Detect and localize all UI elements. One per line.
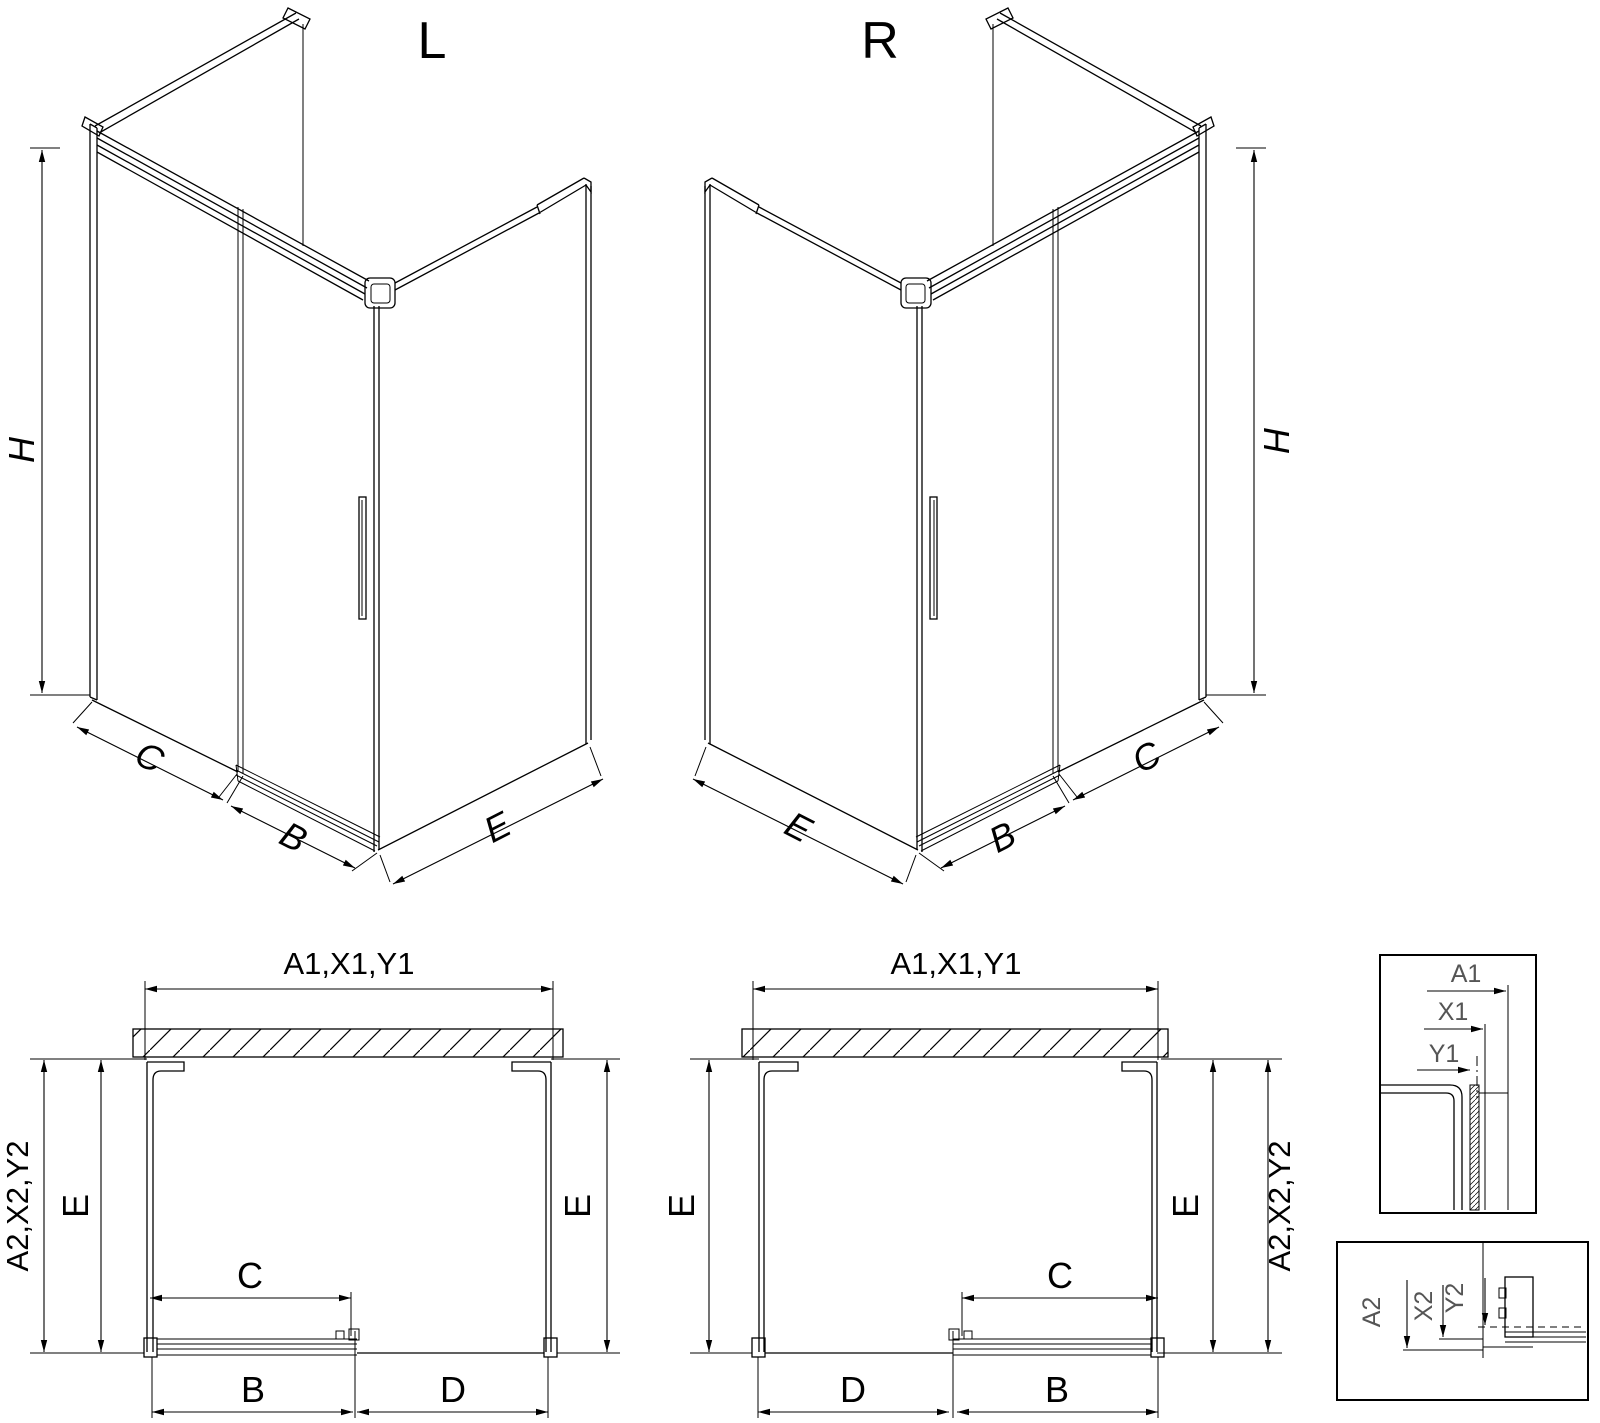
right-panel-outer-edge	[586, 184, 591, 744]
dim-H-extensions	[30, 148, 90, 695]
dim-label-height: H	[1, 436, 42, 463]
door-roller	[964, 1331, 972, 1339]
top-corner-block-inner	[906, 284, 925, 303]
right-wall-profile	[1199, 124, 1206, 700]
dim-H-extensions	[1206, 148, 1266, 695]
detail-dim-Y2: Y2	[1441, 1283, 1469, 1314]
dim-label-width: A1,X1,Y1	[284, 946, 415, 981]
top-rail-right	[395, 207, 539, 290]
wall-section-hatched	[133, 1029, 563, 1057]
door-roller	[336, 1331, 344, 1339]
dim-label-width: A1,X1,Y1	[891, 946, 1022, 981]
door-handle	[359, 497, 366, 619]
dim-label-door: B	[982, 813, 1022, 860]
bottom-dim-extensions	[758, 1357, 1158, 1418]
dim-label-opening: C	[237, 1255, 263, 1296]
front-corner-edge	[917, 306, 922, 852]
left-corner-block	[144, 1338, 157, 1357]
detail-wall-profile: A1 X1 Y1	[1380, 955, 1536, 1213]
detail-dim-A2: A2	[1358, 1297, 1386, 1328]
variant-label-left: L	[418, 12, 447, 70]
fixed-panel-bottom-edge	[1058, 700, 1204, 772]
top-rail-right	[927, 131, 1199, 300]
dim-label-side: E	[477, 803, 518, 851]
dim-label-opening: C	[1047, 1255, 1073, 1296]
door-end-block	[949, 1329, 959, 1340]
fixed-panel-bottom-edge	[92, 700, 238, 772]
dim-label-depth-right: E	[557, 1194, 598, 1218]
wall-section-hatched	[742, 1029, 1168, 1057]
door-bottom-track	[236, 765, 380, 851]
dim-label-fixed: C	[1125, 732, 1168, 781]
dim-label-height: H	[1256, 427, 1297, 454]
technical-drawing-page: H C B E L	[0, 0, 1600, 1423]
front-corner-edge	[374, 306, 379, 852]
dim-label-bottom-right: D	[440, 1369, 466, 1410]
plan-view-left: A1,X1,Y1 C A2,X2,Y2 E E B D	[0, 946, 620, 1418]
plan-view-right: A1,X1,Y1 C E E A2,X2,Y2 D B	[661, 946, 1297, 1418]
right-glass-plan	[512, 1062, 551, 1352]
detail-dim-A1: A1	[1451, 960, 1482, 988]
iso-view-left: H C B E L	[1, 8, 603, 884]
wall-profile-section	[1380, 1085, 1462, 1210]
dim-label-bottom-left: B	[241, 1369, 265, 1410]
rail-lines	[1483, 1332, 1586, 1347]
top-rail-right-endcap	[537, 178, 591, 214]
door-track-plan	[157, 1339, 357, 1355]
dim-label-bottom-right: B	[1045, 1369, 1069, 1410]
dim-label-depth-right: E	[1165, 1194, 1206, 1218]
top-stabilizer-bar	[997, 13, 1201, 133]
glass-section	[1470, 1085, 1479, 1210]
dim-label-bottom-left: D	[840, 1369, 866, 1410]
door-overlap-edge	[1053, 207, 1058, 774]
bottom-dim-extensions	[152, 1357, 548, 1418]
left-glass-plan	[759, 1062, 798, 1352]
dim-label-depth-left: E	[661, 1194, 702, 1218]
detail-dim-X1: X1	[1438, 998, 1469, 1026]
left-wall-profile	[90, 124, 97, 700]
variant-label-right: R	[861, 12, 899, 70]
dim-label-side: E	[779, 803, 820, 851]
dim-label-depth-outer: A2,X2,Y2	[1262, 1141, 1297, 1272]
detail-dim-X2: X2	[1410, 1291, 1438, 1322]
left-panel-bottom-edge	[708, 743, 918, 850]
dim-label-door: B	[274, 813, 314, 860]
shower-enclosure-drawing: H C B E L	[0, 0, 1600, 1423]
door-track-plan	[953, 1339, 1151, 1355]
door-handle	[930, 497, 937, 619]
top-stabilizer-bar	[95, 13, 299, 133]
dim-label-fixed: C	[129, 733, 172, 782]
right-glass-plan	[1122, 1062, 1157, 1352]
rail-bracket	[1505, 1277, 1533, 1337]
left-glass-plan	[147, 1062, 184, 1352]
top-rail-left	[757, 207, 901, 290]
right-panel-bottom-edge	[378, 743, 588, 850]
left-panel-outer-edge	[705, 184, 710, 744]
door-bottom-track	[916, 765, 1060, 851]
detail-bottom-rail: A2 X2 Y2	[1337, 1242, 1588, 1400]
detail-dim-Y1: Y1	[1429, 1040, 1460, 1068]
dim-label-depth-left: E	[55, 1194, 96, 1218]
top-corner-block-inner	[371, 284, 390, 303]
top-rail-left	[97, 131, 369, 300]
top-rail-left-endcap	[705, 178, 759, 214]
detail-frame	[1380, 955, 1536, 1213]
iso-view-right: H C B E R	[693, 8, 1297, 884]
door-overlap-edge	[238, 207, 243, 774]
dim-label-depth-outer: A2,X2,Y2	[0, 1141, 35, 1272]
